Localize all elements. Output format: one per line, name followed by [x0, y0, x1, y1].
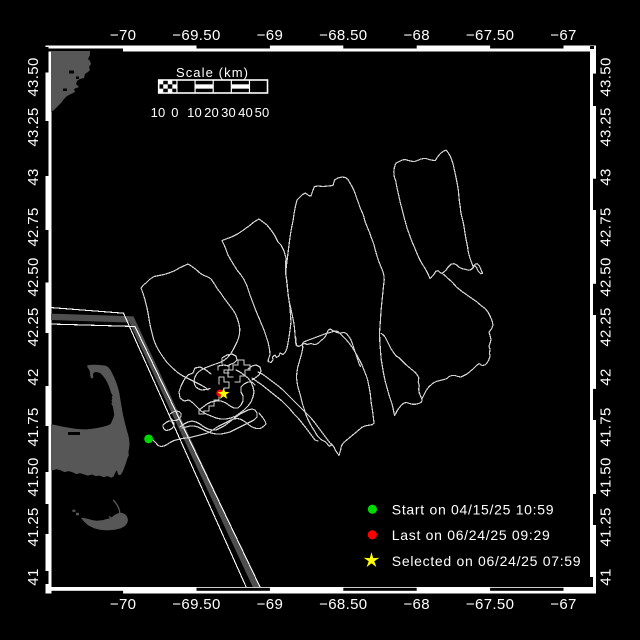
- svg-text:−68.50: −68.50: [319, 27, 367, 44]
- svg-text:42.50: 42.50: [597, 257, 614, 296]
- svg-text:43.25: 43.25: [25, 107, 42, 146]
- svg-text:10: 10: [187, 105, 202, 120]
- svg-text:Scale (km): Scale (km): [176, 65, 249, 80]
- svg-text:42: 42: [597, 368, 614, 385]
- svg-text:41: 41: [25, 568, 42, 585]
- svg-text:Start on 04/15/25 10:59: Start on 04/15/25 10:59: [392, 502, 554, 518]
- svg-text:−67.50: −67.50: [466, 596, 514, 613]
- svg-text:−69: −69: [257, 27, 284, 44]
- svg-text:42.25: 42.25: [25, 307, 42, 346]
- svg-text:43.50: 43.50: [597, 57, 614, 96]
- svg-text:−68: −68: [403, 27, 430, 44]
- svg-text:42.75: 42.75: [597, 207, 614, 246]
- svg-text:41.25: 41.25: [25, 507, 42, 546]
- svg-text:30: 30: [221, 105, 236, 120]
- svg-text:−69: −69: [257, 596, 284, 613]
- svg-text:0: 0: [171, 105, 178, 120]
- svg-text:43: 43: [597, 168, 614, 185]
- svg-text:10: 10: [151, 105, 166, 120]
- svg-text:42: 42: [25, 368, 42, 385]
- svg-text:−69.50: −69.50: [172, 596, 220, 613]
- svg-text:41.75: 41.75: [597, 407, 614, 446]
- svg-text:−67.50: −67.50: [466, 27, 514, 44]
- svg-text:50: 50: [255, 105, 270, 120]
- svg-text:−67: −67: [550, 596, 577, 613]
- svg-text:20: 20: [204, 105, 219, 120]
- svg-text:−68.50: −68.50: [319, 596, 367, 613]
- svg-text:41.25: 41.25: [597, 507, 614, 546]
- svg-text:−70: −70: [110, 27, 137, 44]
- svg-text:42.75: 42.75: [25, 207, 42, 246]
- svg-text:43.50: 43.50: [25, 57, 42, 96]
- svg-text:43.25: 43.25: [597, 107, 614, 146]
- svg-text:41.75: 41.75: [25, 407, 42, 446]
- svg-text:−69.50: −69.50: [172, 27, 220, 44]
- svg-text:−68: −68: [403, 596, 430, 613]
- svg-text:41.50: 41.50: [25, 457, 42, 496]
- svg-text:42.25: 42.25: [597, 307, 614, 346]
- svg-text:41: 41: [597, 568, 614, 585]
- svg-text:Last on 06/24/25 09:29: Last on 06/24/25 09:29: [392, 527, 551, 543]
- svg-text:−67: −67: [550, 27, 577, 44]
- svg-text:−70: −70: [110, 596, 137, 613]
- svg-text:41.50: 41.50: [597, 457, 614, 496]
- svg-text:43: 43: [25, 168, 42, 185]
- svg-text:42.50: 42.50: [25, 257, 42, 296]
- svg-text:40: 40: [238, 105, 253, 120]
- svg-text:Selected on 06/24/25 07:59: Selected on 06/24/25 07:59: [392, 553, 581, 569]
